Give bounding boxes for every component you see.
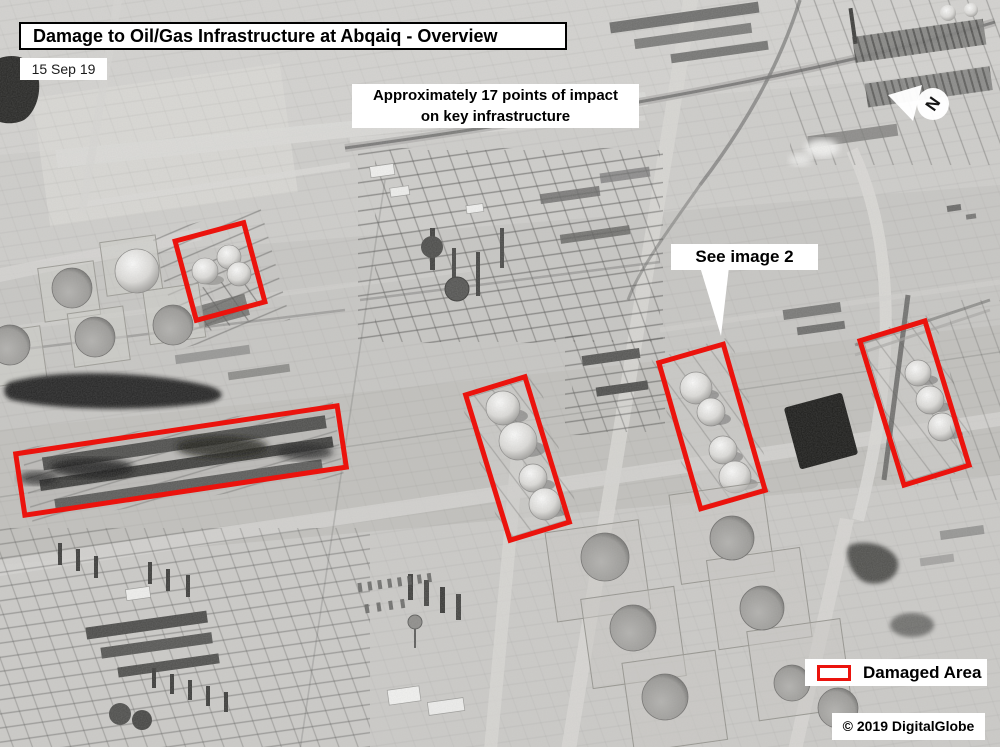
see-image-2-label: See image 2: [671, 244, 818, 270]
impact-note-line1: Approximately 17 points of impact: [352, 85, 639, 106]
impact-note-line2: on key infrastructure: [352, 106, 639, 127]
legend: Damaged Area: [805, 659, 987, 686]
date-label: 15 Sep 19: [20, 58, 107, 80]
title-banner: Damage to Oil/Gas Infrastructure at Abqa…: [19, 22, 567, 50]
legend-label: Damaged Area: [863, 663, 981, 683]
damaged-area-swatch: [817, 665, 851, 681]
annotated-satellite-view: N Damage to Oil/Gas Infrastructure at Ab…: [0, 0, 1000, 750]
impact-note: Approximately 17 points of impact on key…: [352, 84, 639, 128]
credit-label: © 2019 DigitalGlobe: [832, 713, 985, 740]
